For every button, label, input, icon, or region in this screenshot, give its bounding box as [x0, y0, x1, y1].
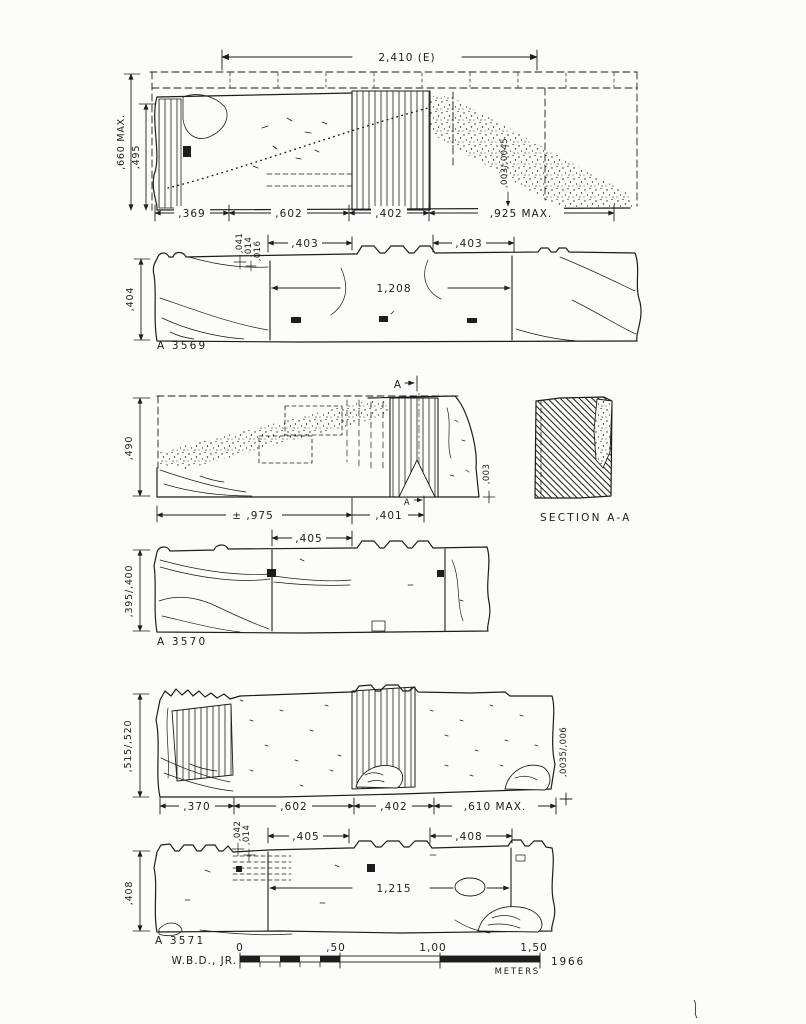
drawing-sheet: 2,410 (E) ,660 MAX. ,495 ,003/,0045 ,369…: [0, 0, 806, 1024]
section-letter-bottom: A: [404, 498, 410, 508]
rock-bottom-left: [159, 923, 292, 936]
fluted-band-center: [352, 91, 430, 210]
dim-bottom: ,401: [375, 510, 402, 522]
dim-offset-note: ,0035/,006: [559, 727, 569, 777]
fluted-block-left: [172, 704, 233, 781]
offset-plus-mark: [483, 491, 495, 503]
dowel-holes: [267, 569, 444, 577]
plan-outline: [154, 541, 490, 633]
small-socket: [516, 855, 525, 861]
cutting-notch: [372, 621, 385, 631]
section-label: SECTION A-A: [540, 512, 632, 524]
joint-lines: [272, 549, 445, 631]
strata-lines: [160, 560, 351, 585]
stipple-break-band: [160, 401, 392, 469]
top-dim: ,403: [455, 238, 482, 250]
top-dim: ,408: [455, 831, 482, 843]
dim-bottom: ,610 MAX.: [464, 801, 527, 813]
dim-bottom: ,402: [380, 801, 407, 813]
stipple-slope: [428, 96, 632, 208]
edge-dim: ,014: [242, 825, 252, 846]
dim-height: ,495: [131, 145, 142, 169]
section-marker-top: [405, 376, 417, 391]
socket-mark: [183, 146, 191, 157]
figure-label-a3571: A 3571: [155, 935, 205, 947]
edge-dim: ,016: [253, 241, 263, 262]
dim-total-width: 2,410 (E): [378, 52, 435, 64]
dim-height-max: ,660 MAX.: [116, 114, 127, 170]
dim-bottom: ,402: [375, 208, 402, 220]
side-dim: ,404: [125, 287, 136, 311]
length-dim: 1,208: [376, 283, 411, 295]
side-dimension: [133, 398, 150, 496]
right-surface-marks: [447, 408, 469, 476]
figure-label-a3569: A 3569: [157, 340, 207, 352]
rock-blob-right: [478, 907, 542, 932]
dim-offset-note: ,003/,0045: [500, 138, 510, 188]
erosion-hollow: [455, 878, 485, 896]
a3570-elevation: [133, 376, 495, 524]
dim-bottom: ,925 MAX.: [490, 208, 553, 220]
fluted-band-left: [159, 99, 181, 208]
rock-blob-right: [505, 765, 550, 790]
surface-marks: [300, 559, 463, 601]
measured-drawing-canvas: 2,410 (E) ,660 MAX. ,495 ,003/,0045 ,369…: [0, 0, 806, 1024]
surface-marks: [185, 855, 436, 903]
author-credit: W.B.D., JR.: [171, 955, 237, 967]
surface-marks: [253, 118, 327, 168]
scale-tick-label: 1,00: [419, 942, 446, 954]
length-dim: 1,215: [376, 883, 411, 895]
side-dimension: [133, 694, 149, 797]
a3571-plan: [133, 828, 555, 936]
side-dimension: [133, 851, 150, 931]
a3571-elevation: [133, 685, 572, 814]
scale-tick-label: 1,50: [520, 942, 547, 954]
top-dim: ,405: [295, 533, 322, 545]
datum-plus-mark: [560, 793, 572, 805]
a3569-elevation: [124, 50, 637, 221]
scale-bar: [240, 953, 540, 968]
stray-ink-mark: [694, 1000, 697, 1018]
rock-chunk: [183, 95, 227, 139]
top-dim: ,405: [292, 831, 319, 843]
dim-bottom: ,369: [178, 208, 205, 220]
section-letter-top: A: [394, 379, 402, 391]
top-dim: ,403: [291, 238, 318, 250]
dim-bottom: ,602: [275, 208, 302, 220]
rock-texture: [160, 470, 252, 496]
side-dimension: [133, 550, 150, 631]
dim-offset-note: ,003: [482, 464, 492, 485]
dashed-recess: [267, 174, 352, 186]
figure-label-a3570: A 3570: [157, 636, 207, 648]
side-dim: ,408: [124, 881, 135, 905]
scale-unit: METERS: [495, 967, 540, 977]
dim-bottom: ± ,975: [232, 510, 274, 522]
scale-tick-label: ,50: [326, 942, 346, 954]
crack-lines: [160, 257, 636, 341]
tick-mark: [391, 311, 394, 314]
side-dim: ,490: [124, 436, 135, 460]
scale-bar-fills: [240, 956, 540, 962]
dim-bottom: ,602: [280, 801, 307, 813]
a3570-plan: [133, 530, 490, 633]
joint-lines: [270, 256, 512, 340]
dim-bottom: ,370: [183, 801, 210, 813]
left-dimension-lines: [124, 74, 156, 210]
scale-tick-label: 0: [236, 942, 244, 954]
side-dim: ,395/,400: [124, 565, 135, 618]
side-dimension: [134, 259, 150, 340]
section-a-a: [535, 397, 612, 498]
side-dim: ,515/,520: [123, 720, 134, 773]
dowel-holes: [291, 316, 477, 323]
year: 1966: [551, 956, 585, 968]
rock-texture: [159, 560, 463, 632]
